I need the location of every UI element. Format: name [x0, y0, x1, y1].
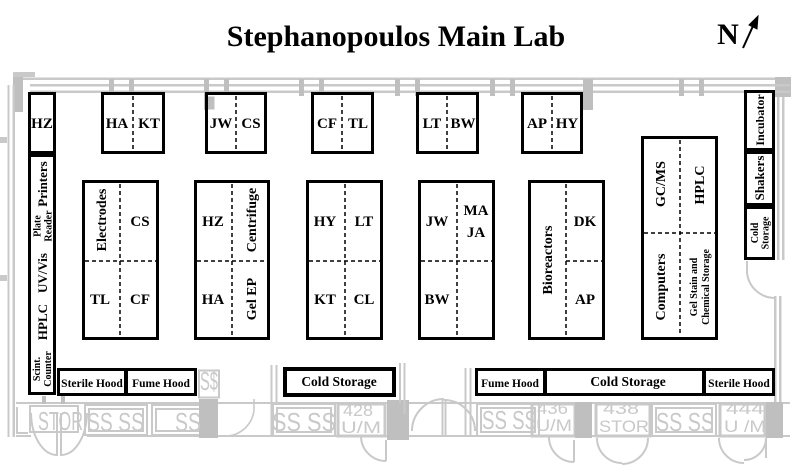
svg-text:CL: CL [354, 292, 375, 308]
svg-text:LT: LT [423, 116, 442, 132]
svg-text:Storage: Storage [761, 216, 772, 249]
svg-text:Counter: Counter [43, 351, 54, 387]
svg-text:Cold Storage: Cold Storage [590, 374, 665, 389]
svg-text:TL: TL [348, 116, 368, 132]
svg-text:SS SS: SS SS [656, 407, 714, 437]
svg-text:Gel Stain and: Gel Stain and [689, 257, 700, 316]
svg-text:BW: BW [424, 292, 449, 308]
svg-text:SS SS: SS SS [272, 407, 336, 437]
svg-text:LT: LT [355, 214, 374, 230]
svg-text:U/M: U/M [341, 418, 381, 437]
svg-text:HPLC: HPLC [35, 304, 50, 340]
svg-text:Gel EP: Gel EP [245, 277, 260, 320]
svg-text:CS: CS [241, 116, 260, 132]
svg-text:Chemical Storage: Chemical Storage [701, 249, 712, 325]
svg-text:SS: SS [175, 407, 201, 437]
svg-text:KT: KT [138, 116, 160, 132]
svg-text:UV/Vis: UV/Vis [35, 253, 50, 293]
svg-text:Shakers: Shakers [752, 156, 767, 201]
svg-text:U /M: U /M [724, 417, 766, 436]
svg-text:Computers: Computers [654, 253, 669, 320]
svg-text:HPLC: HPLC [693, 166, 708, 205]
svg-text:STOR: STOR [38, 406, 83, 436]
svg-text:Cold Storage: Cold Storage [301, 374, 376, 389]
svg-text:AP: AP [527, 116, 547, 132]
svg-text:AP: AP [575, 292, 595, 308]
svg-text:Plate: Plate [33, 215, 44, 237]
svg-text:438: 438 [603, 399, 639, 418]
svg-text:MA: MA [464, 203, 489, 219]
svg-text:Sterile Hood: Sterile Hood [61, 378, 123, 390]
svg-text:BW: BW [450, 116, 475, 132]
svg-text:JW: JW [210, 116, 233, 132]
svg-text:HA: HA [106, 116, 129, 132]
svg-text:STOR: STOR [599, 417, 649, 436]
svg-text:CF: CF [317, 116, 337, 132]
svg-text:Centrifuge: Centrifuge [245, 188, 260, 253]
svg-text:Printers: Printers [35, 161, 50, 206]
svg-text:HA: HA [202, 292, 225, 308]
svg-text:Sterile Hood: Sterile Hood [708, 378, 770, 390]
svg-text:CS: CS [130, 214, 149, 230]
svg-text:Incubator: Incubator [753, 94, 767, 146]
svg-text:U/M: U/M [536, 416, 572, 435]
svg-text:Scint.: Scint. [32, 356, 43, 381]
svg-text:N: N [717, 18, 739, 51]
svg-text:DK: DK [574, 214, 597, 230]
svg-text:Bioreactors: Bioreactors [541, 225, 556, 294]
svg-text:HY: HY [314, 214, 337, 230]
svg-text:JW: JW [426, 214, 449, 230]
svg-text:Cold: Cold [750, 222, 761, 243]
svg-text:SS SS: SS SS [482, 405, 537, 435]
svg-text:HZ: HZ [202, 214, 224, 230]
svg-text:SS SS: SS SS [87, 407, 144, 437]
svg-text:KT: KT [314, 292, 336, 308]
svg-text:HY: HY [556, 116, 579, 132]
svg-text:HZ: HZ [31, 116, 53, 132]
svg-text:JA: JA [467, 225, 486, 241]
svg-text:444: 444 [726, 399, 764, 418]
svg-text:Fume Hood: Fume Hood [132, 378, 190, 390]
svg-text:Stephanopoulos Main Lab: Stephanopoulos Main Lab [227, 20, 565, 53]
svg-text:TL: TL [90, 292, 110, 308]
svg-text:Fume Hood: Fume Hood [481, 378, 539, 390]
svg-text:GC/MS: GC/MS [654, 161, 669, 207]
svg-text:CF: CF [130, 292, 150, 308]
svg-text:Electrodes: Electrodes [95, 188, 110, 251]
svg-text:Reader: Reader [44, 210, 55, 242]
